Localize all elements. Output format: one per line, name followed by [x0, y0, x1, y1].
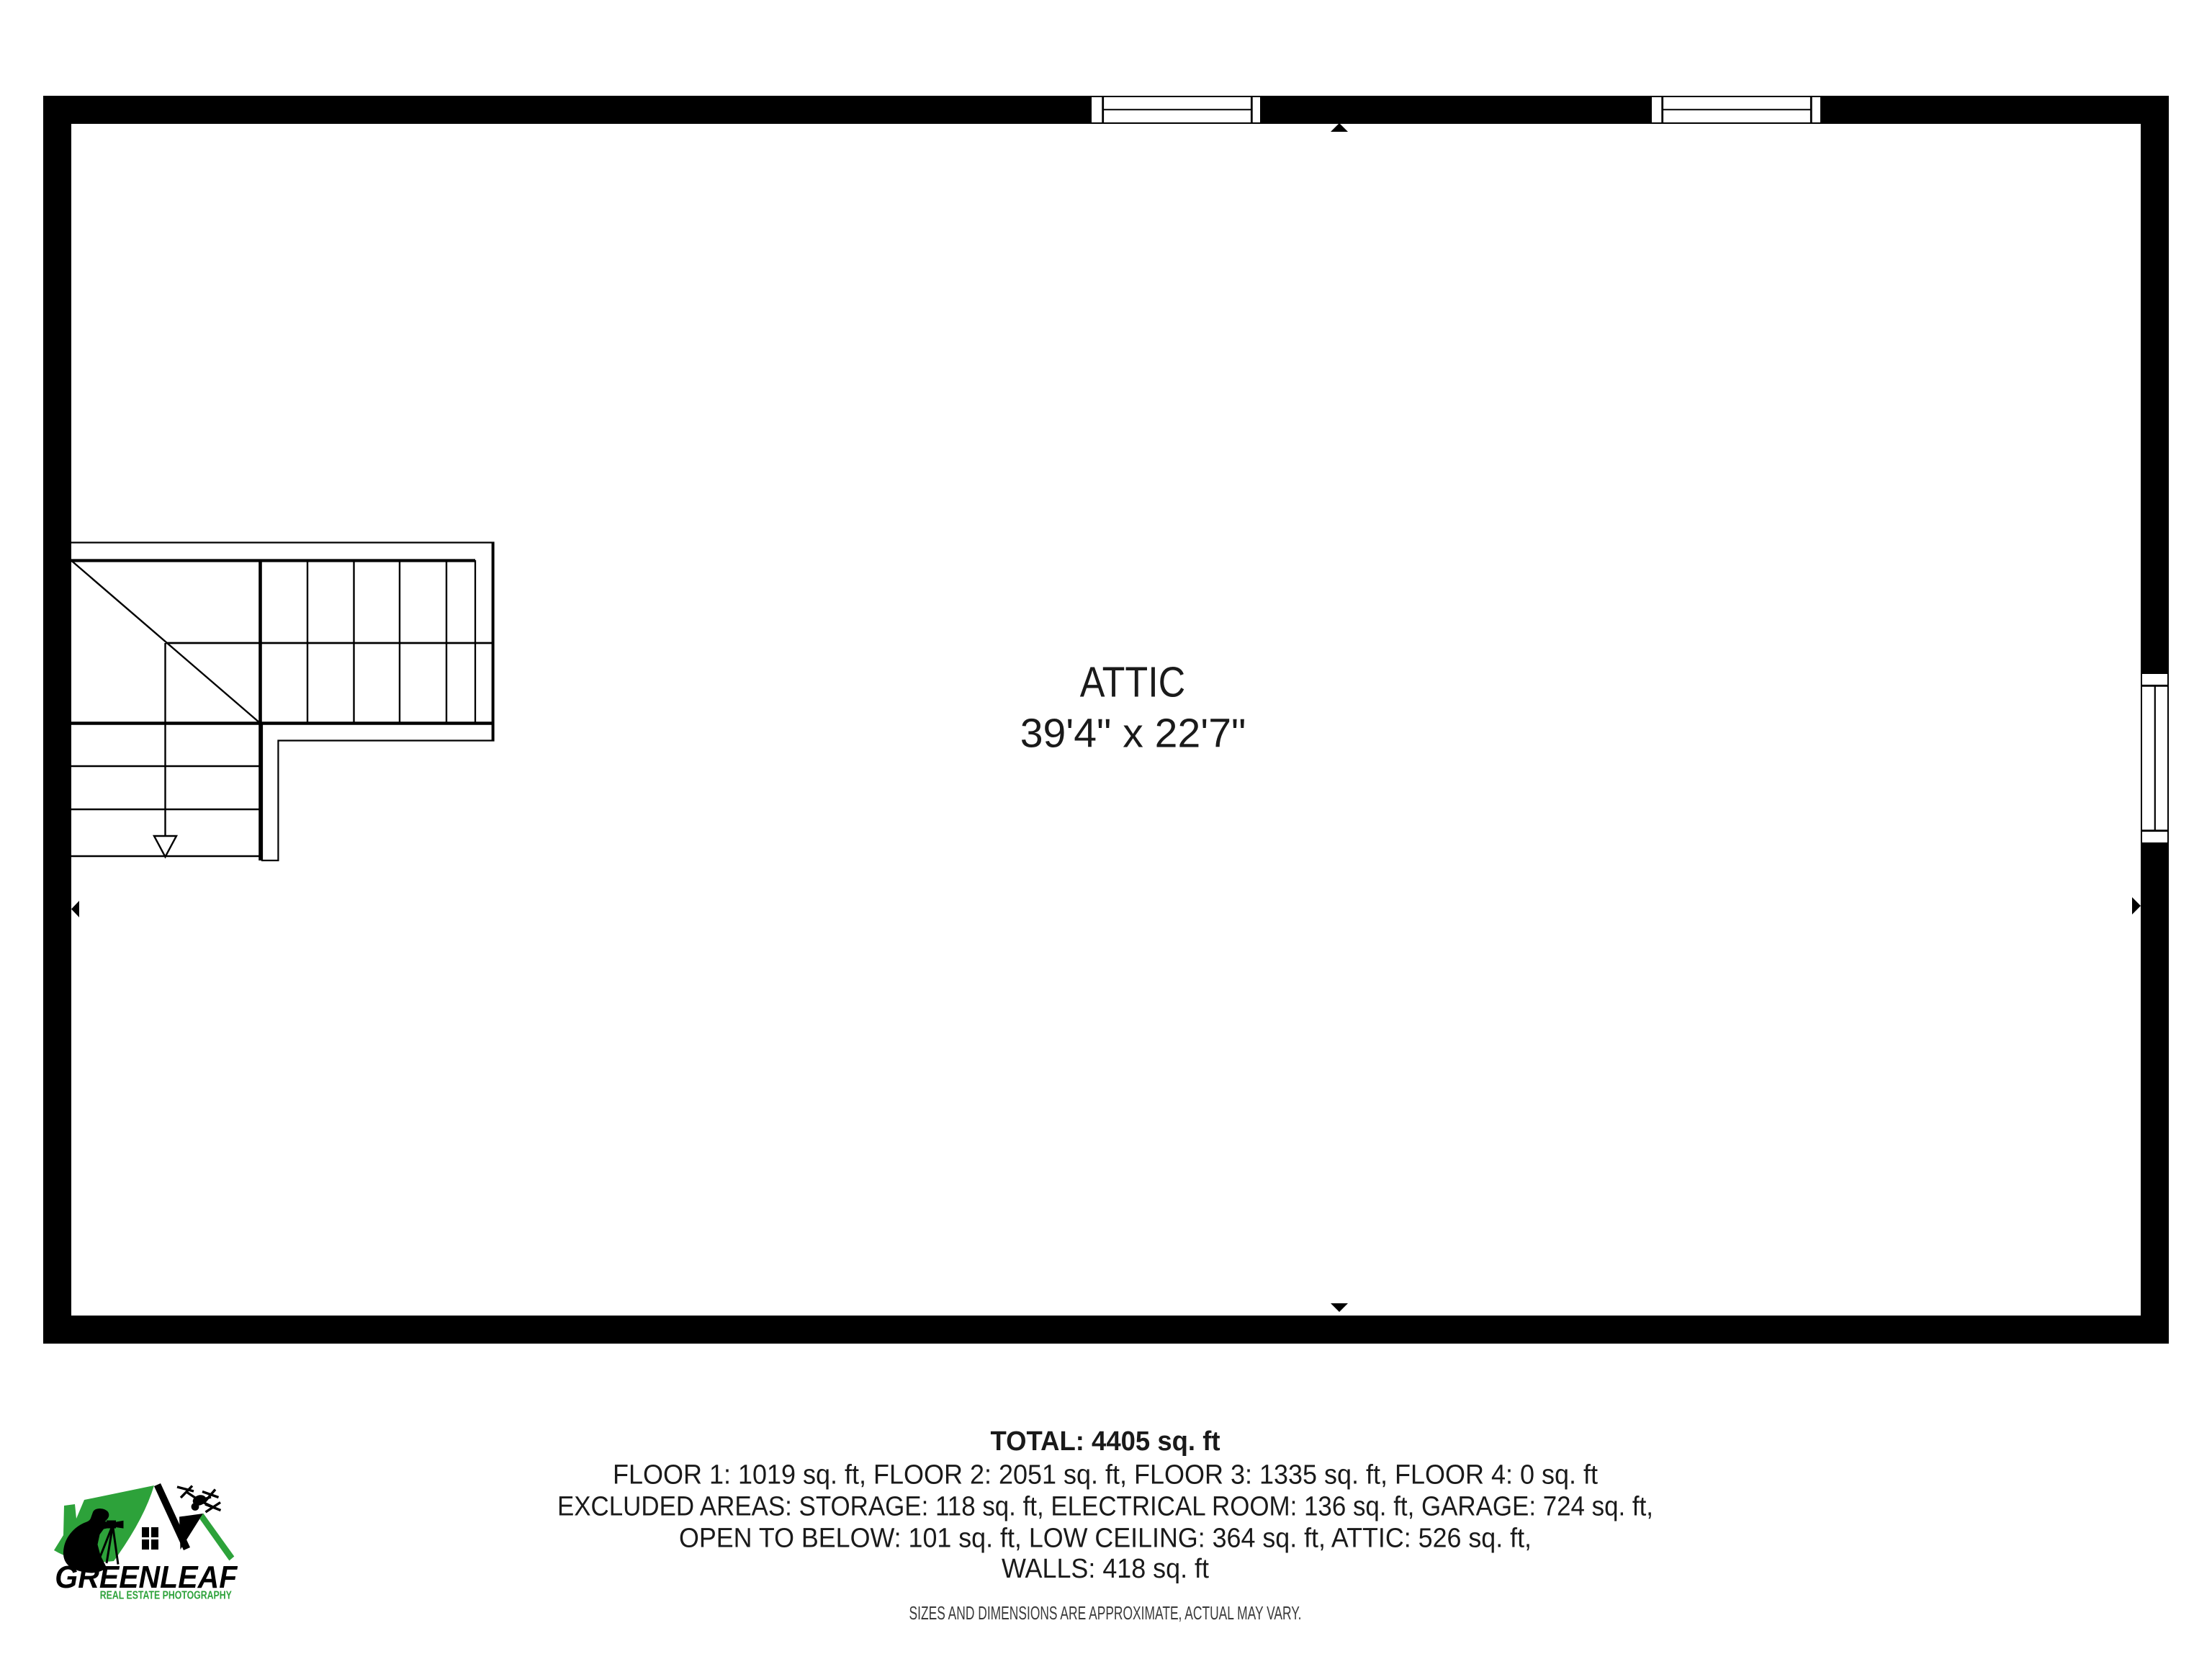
svg-text:OPEN TO BELOW: 101 sq. ft, LOW: OPEN TO BELOW: 101 sq. ft, LOW CEILING: … — [679, 1524, 1532, 1554]
svg-text:SIZES AND DIMENSIONS ARE APPRO: SIZES AND DIMENSIONS ARE APPROXIMATE, AC… — [909, 1602, 1302, 1624]
svg-text:REAL ESTATE PHOTOGRAPHY: REAL ESTATE PHOTOGRAPHY — [100, 1590, 232, 1602]
svg-text:WALLS: 418 sq. ft: WALLS: 418 sq. ft — [1002, 1554, 1209, 1584]
svg-text:TOTAL: 4405 sq. ft: TOTAL: 4405 sq. ft — [991, 1426, 1220, 1457]
svg-text:EXCLUDED AREAS: STORAGE: 118 s: EXCLUDED AREAS: STORAGE: 118 sq. ft, ELE… — [557, 1492, 1653, 1522]
svg-text:ATTIC: ATTIC — [1080, 659, 1186, 706]
svg-text:39'4" x 22'7": 39'4" x 22'7" — [1020, 711, 1246, 757]
svg-text:FLOOR 1: 1019 sq. ft, FLOOR 2:: FLOOR 1: 1019 sq. ft, FLOOR 2: 2051 sq. … — [613, 1460, 1598, 1491]
